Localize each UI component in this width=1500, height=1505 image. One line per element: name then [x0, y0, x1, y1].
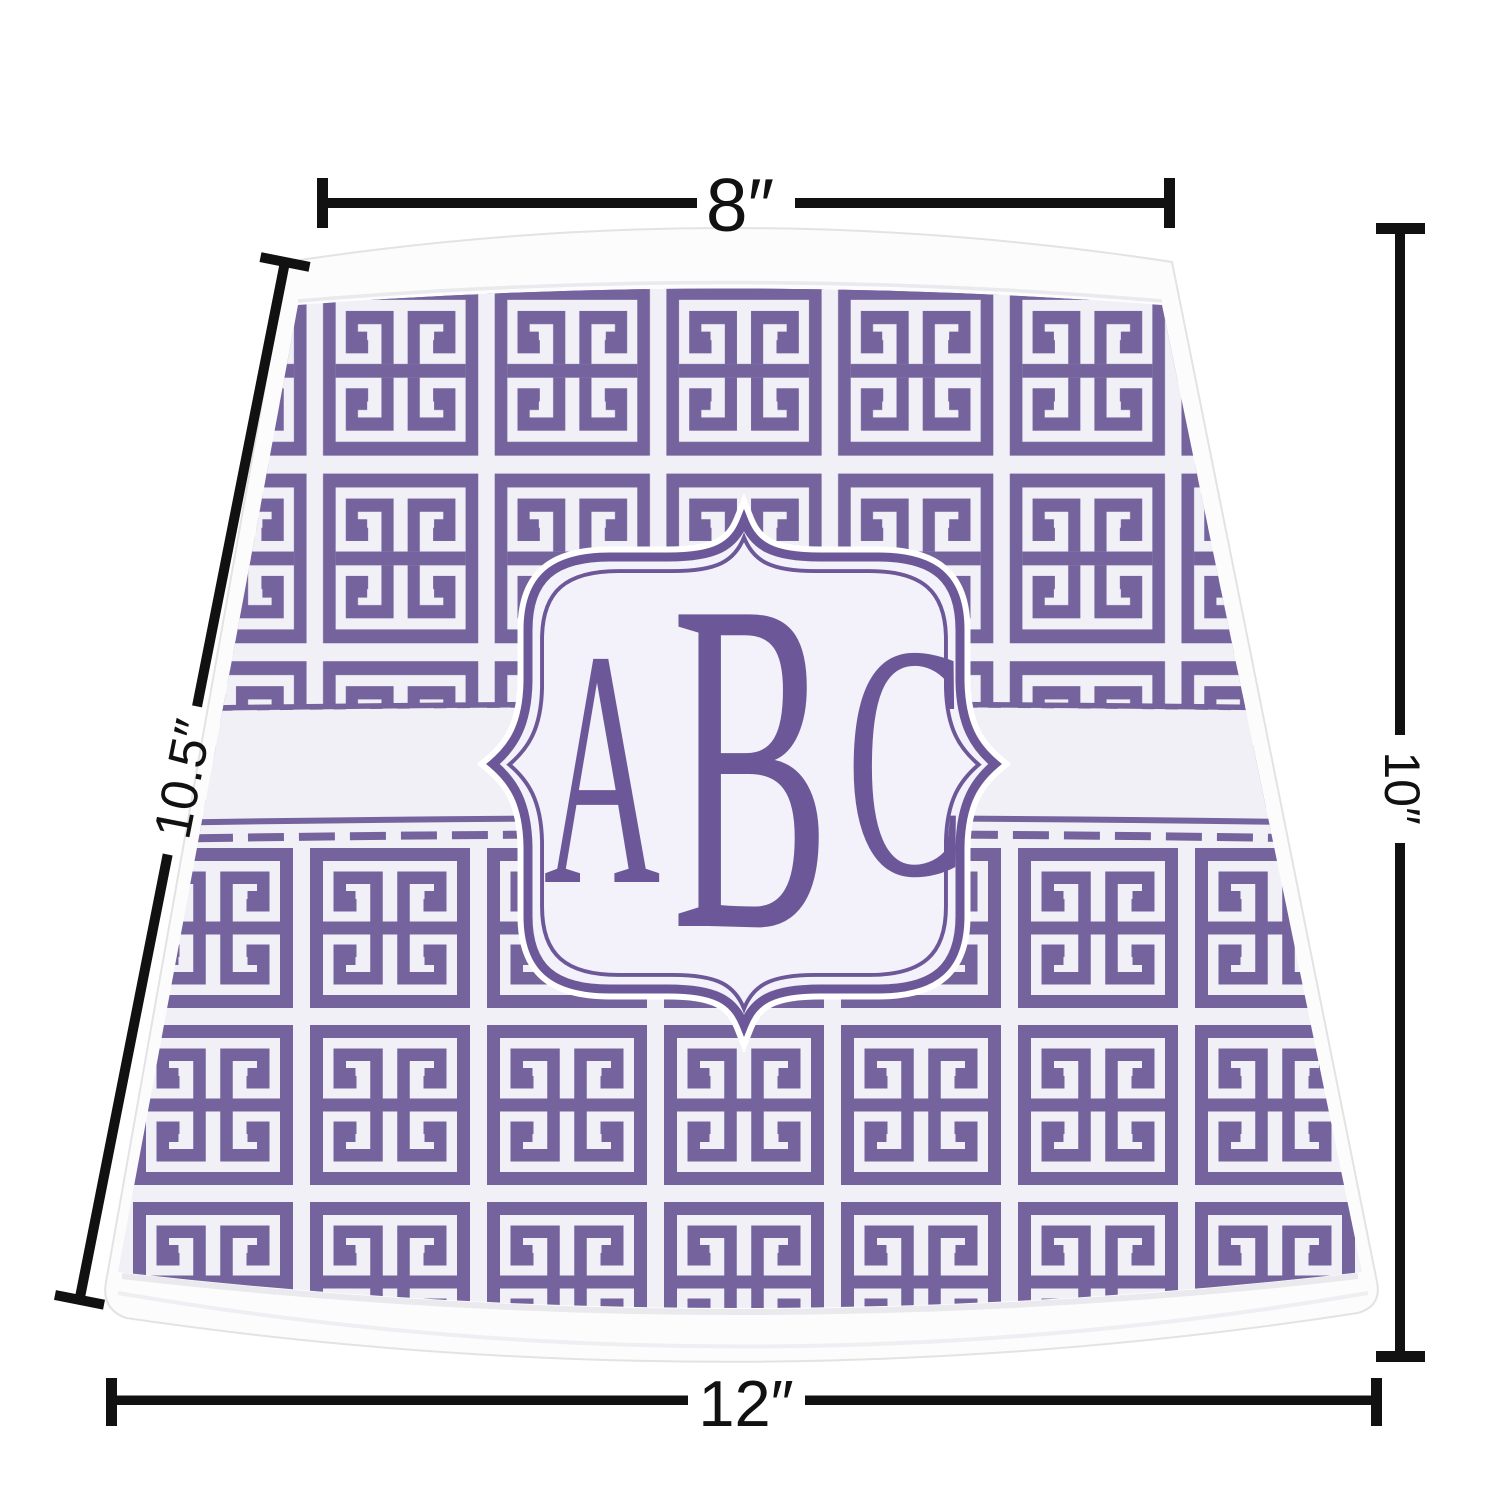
svg-text:8″: 8″: [706, 163, 774, 247]
svg-text:B: B: [672, 504, 831, 1030]
svg-text:A: A: [544, 582, 661, 956]
svg-text:C: C: [846, 576, 965, 946]
svg-text:10″: 10″: [1374, 751, 1430, 824]
svg-text:12″: 12″: [698, 1367, 793, 1440]
